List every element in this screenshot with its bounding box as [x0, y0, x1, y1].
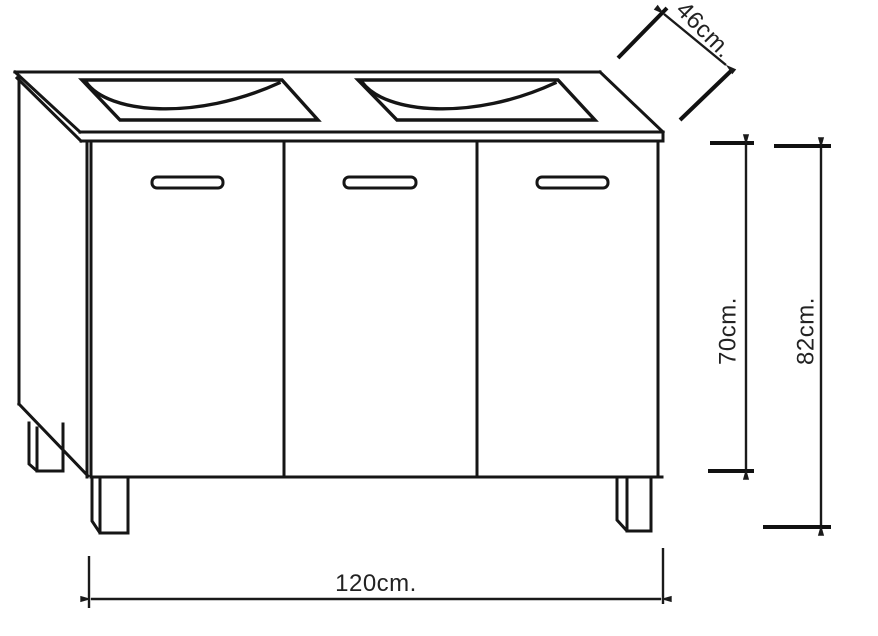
- cabinet-body: [87, 141, 662, 477]
- sink-right: [358, 80, 595, 120]
- handle-right-door: [537, 177, 608, 188]
- width-label: 120cm.: [335, 570, 417, 597]
- countertop: [15, 72, 663, 141]
- depth-extension-line-near: [618, 8, 667, 58]
- countertop-left-diagonal-bottom: [17, 78, 81, 141]
- countertop-right-diagonal-edge: [600, 72, 663, 132]
- dimension-width: 120cm.: [89, 548, 663, 608]
- depth-extension-line-far: [680, 70, 732, 120]
- sink-left: [82, 80, 318, 120]
- drawing-canvas: 46cm. 70cm. 82cm. 120cm.: [0, 0, 878, 636]
- cabinet: [15, 72, 663, 533]
- vanity-technical-drawing: 46cm. 70cm. 82cm. 120cm.: [0, 0, 878, 636]
- door-handles: [152, 177, 608, 188]
- sink-right-rim: [358, 80, 595, 120]
- handle-middle-door: [344, 177, 416, 188]
- dimension-overall-height: 82cm.: [763, 146, 831, 527]
- countertop-left-diagonal-top: [15, 72, 80, 132]
- dimension-depth: 46cm.: [618, 0, 738, 120]
- depth-label: 46cm.: [670, 0, 737, 64]
- dimension-door-height: 70cm.: [708, 143, 754, 471]
- overall-height-label: 82cm.: [793, 297, 820, 365]
- leg-front-left: [92, 477, 128, 533]
- sink-left-rim: [82, 80, 318, 120]
- sink-left-basin-curve: [86, 82, 279, 109]
- door-height-label: 70cm.: [715, 297, 742, 365]
- sink-right-basin-curve: [362, 82, 555, 109]
- handle-left-door: [152, 177, 223, 188]
- leg-front-right: [617, 477, 651, 531]
